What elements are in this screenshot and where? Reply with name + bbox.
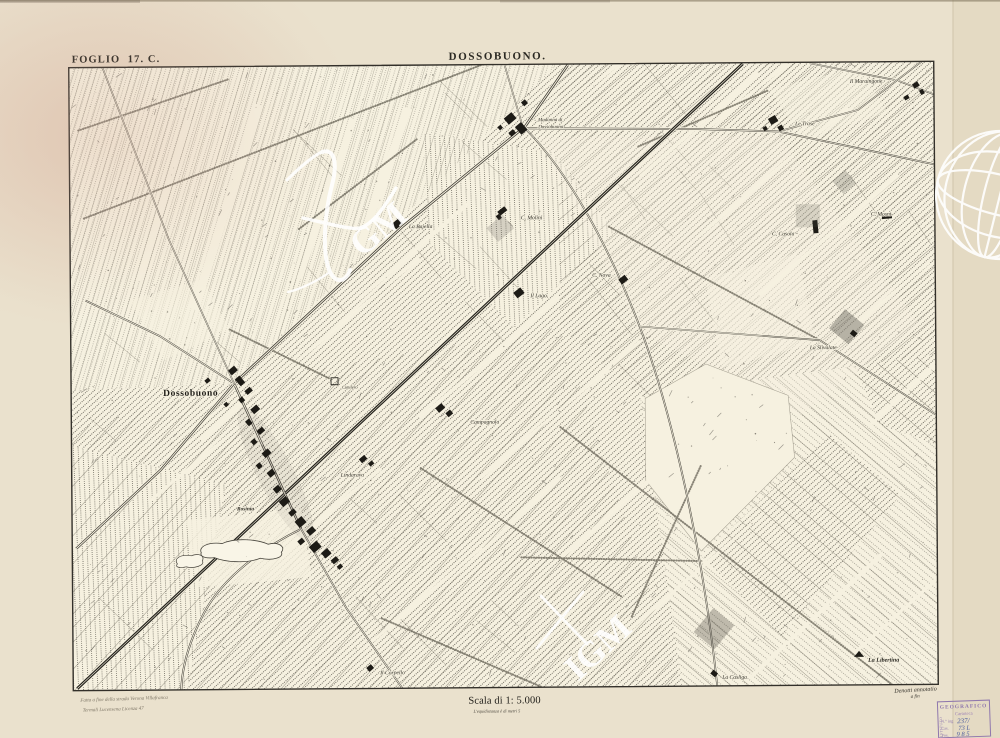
svg-text:Cas.: Cas.: [941, 726, 948, 731]
svg-text:Dossobuono: Dossobuono: [537, 125, 564, 130]
svg-text:Il Maraingone: Il Maraingone: [849, 79, 883, 85]
svg-text:Cartoteca: Cartoteca: [955, 711, 973, 717]
svg-text:Madonna di: Madonna di: [537, 118, 563, 123]
svg-text:Pos.: Pos.: [941, 733, 948, 738]
svg-text:9 8 5: 9 8 5: [956, 731, 970, 738]
svg-text:a fin: a fin: [911, 694, 921, 700]
svg-text:La Slivalate: La Slivalate: [809, 345, 837, 351]
svg-text:C. Molini: C. Molini: [521, 215, 543, 221]
svg-text:Cimitero: Cimitero: [342, 385, 358, 390]
svg-text:Rosinia: Rosinia: [236, 506, 254, 512]
svg-text:Il Lago: Il Lago: [529, 293, 547, 299]
svg-text:C. Nova: C. Nova: [592, 273, 611, 279]
svg-text:Scala di 1: 5.000: Scala di 1: 5.000: [468, 695, 540, 707]
svg-text:Dossobuono: Dossobuono: [163, 389, 218, 399]
svg-text:La Libertina: La Libertina: [867, 658, 899, 664]
svg-text:DOSSOBUONO.: DOSSOBUONO.: [449, 50, 547, 63]
svg-text:Lindarava: Lindarava: [340, 473, 365, 479]
svg-text:L'equidistanza è di metri 5: L'equidistanza è di metri 5: [472, 708, 521, 713]
svg-text:La Casliga: La Casliga: [721, 675, 747, 681]
svg-text:C. Casola: C. Casola: [772, 231, 795, 237]
svg-text:Le Trase: Le Trase: [794, 121, 815, 127]
svg-text:N.° ing: N.° ing: [941, 718, 954, 723]
svg-text:Il Corpello: Il Corpello: [379, 670, 405, 676]
svg-text:Campagnola: Campagnola: [470, 420, 499, 426]
svg-text:C. Mosni: C. Mosni: [871, 212, 892, 218]
